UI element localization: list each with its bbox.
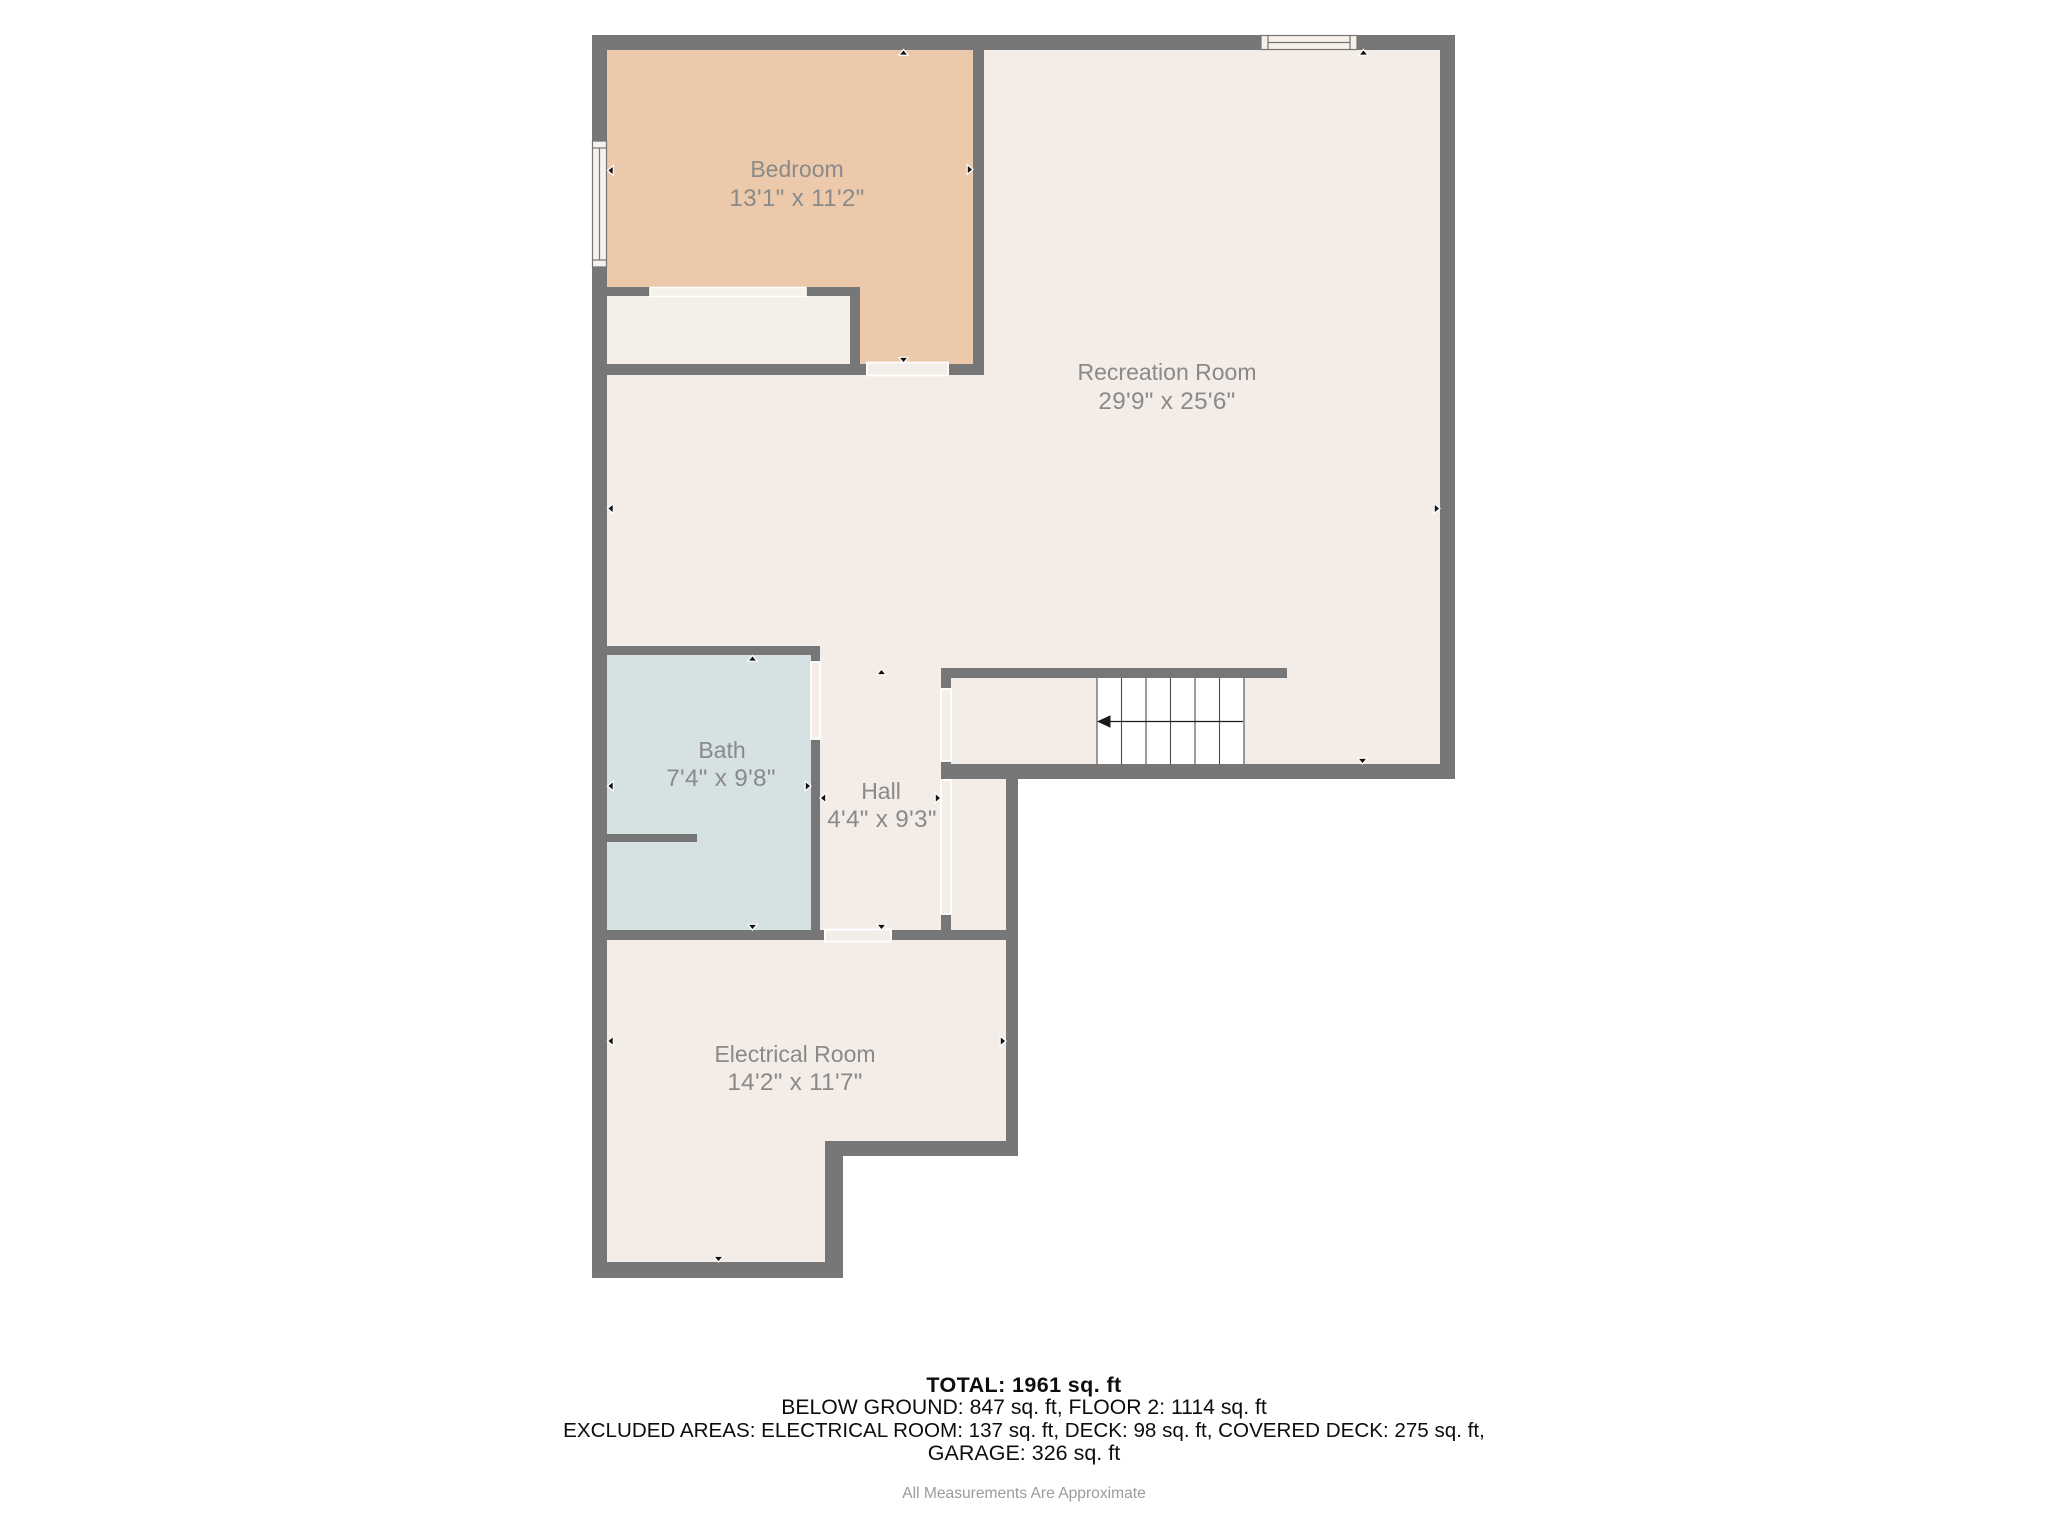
svg-text:Bath: Bath (698, 737, 745, 763)
svg-text:7'4" x 9'8": 7'4" x 9'8" (666, 765, 776, 792)
svg-text:Bedroom: Bedroom (750, 156, 843, 182)
svg-text:BELOW GROUND: 847 sq. ft, FLOO: BELOW GROUND: 847 sq. ft, FLOOR 2: 1114 … (781, 1396, 1267, 1419)
svg-text:TOTAL: 1961 sq. ft: TOTAL: 1961 sq. ft (926, 1373, 1121, 1397)
svg-text:29'9" x 25'6": 29'9" x 25'6" (1098, 388, 1235, 415)
svg-text:Hall: Hall (861, 778, 901, 804)
svg-text:Recreation Room: Recreation Room (1078, 359, 1257, 385)
svg-text:4'4" x 9'3": 4'4" x 9'3" (827, 806, 937, 833)
svg-text:GARAGE: 326 sq. ft: GARAGE: 326 sq. ft (928, 1441, 1120, 1465)
svg-text:14'2" x 11'7": 14'2" x 11'7" (727, 1069, 862, 1096)
svg-text:All Measurements Are Approxima: All Measurements Are Approximate (902, 1485, 1146, 1502)
svg-text:13'1" x 11'2": 13'1" x 11'2" (729, 185, 864, 212)
svg-text:Electrical Room: Electrical Room (714, 1041, 875, 1067)
svg-text:EXCLUDED AREAS: ELECTRICAL ROO: EXCLUDED AREAS: ELECTRICAL ROOM: 137 sq.… (563, 1419, 1485, 1442)
